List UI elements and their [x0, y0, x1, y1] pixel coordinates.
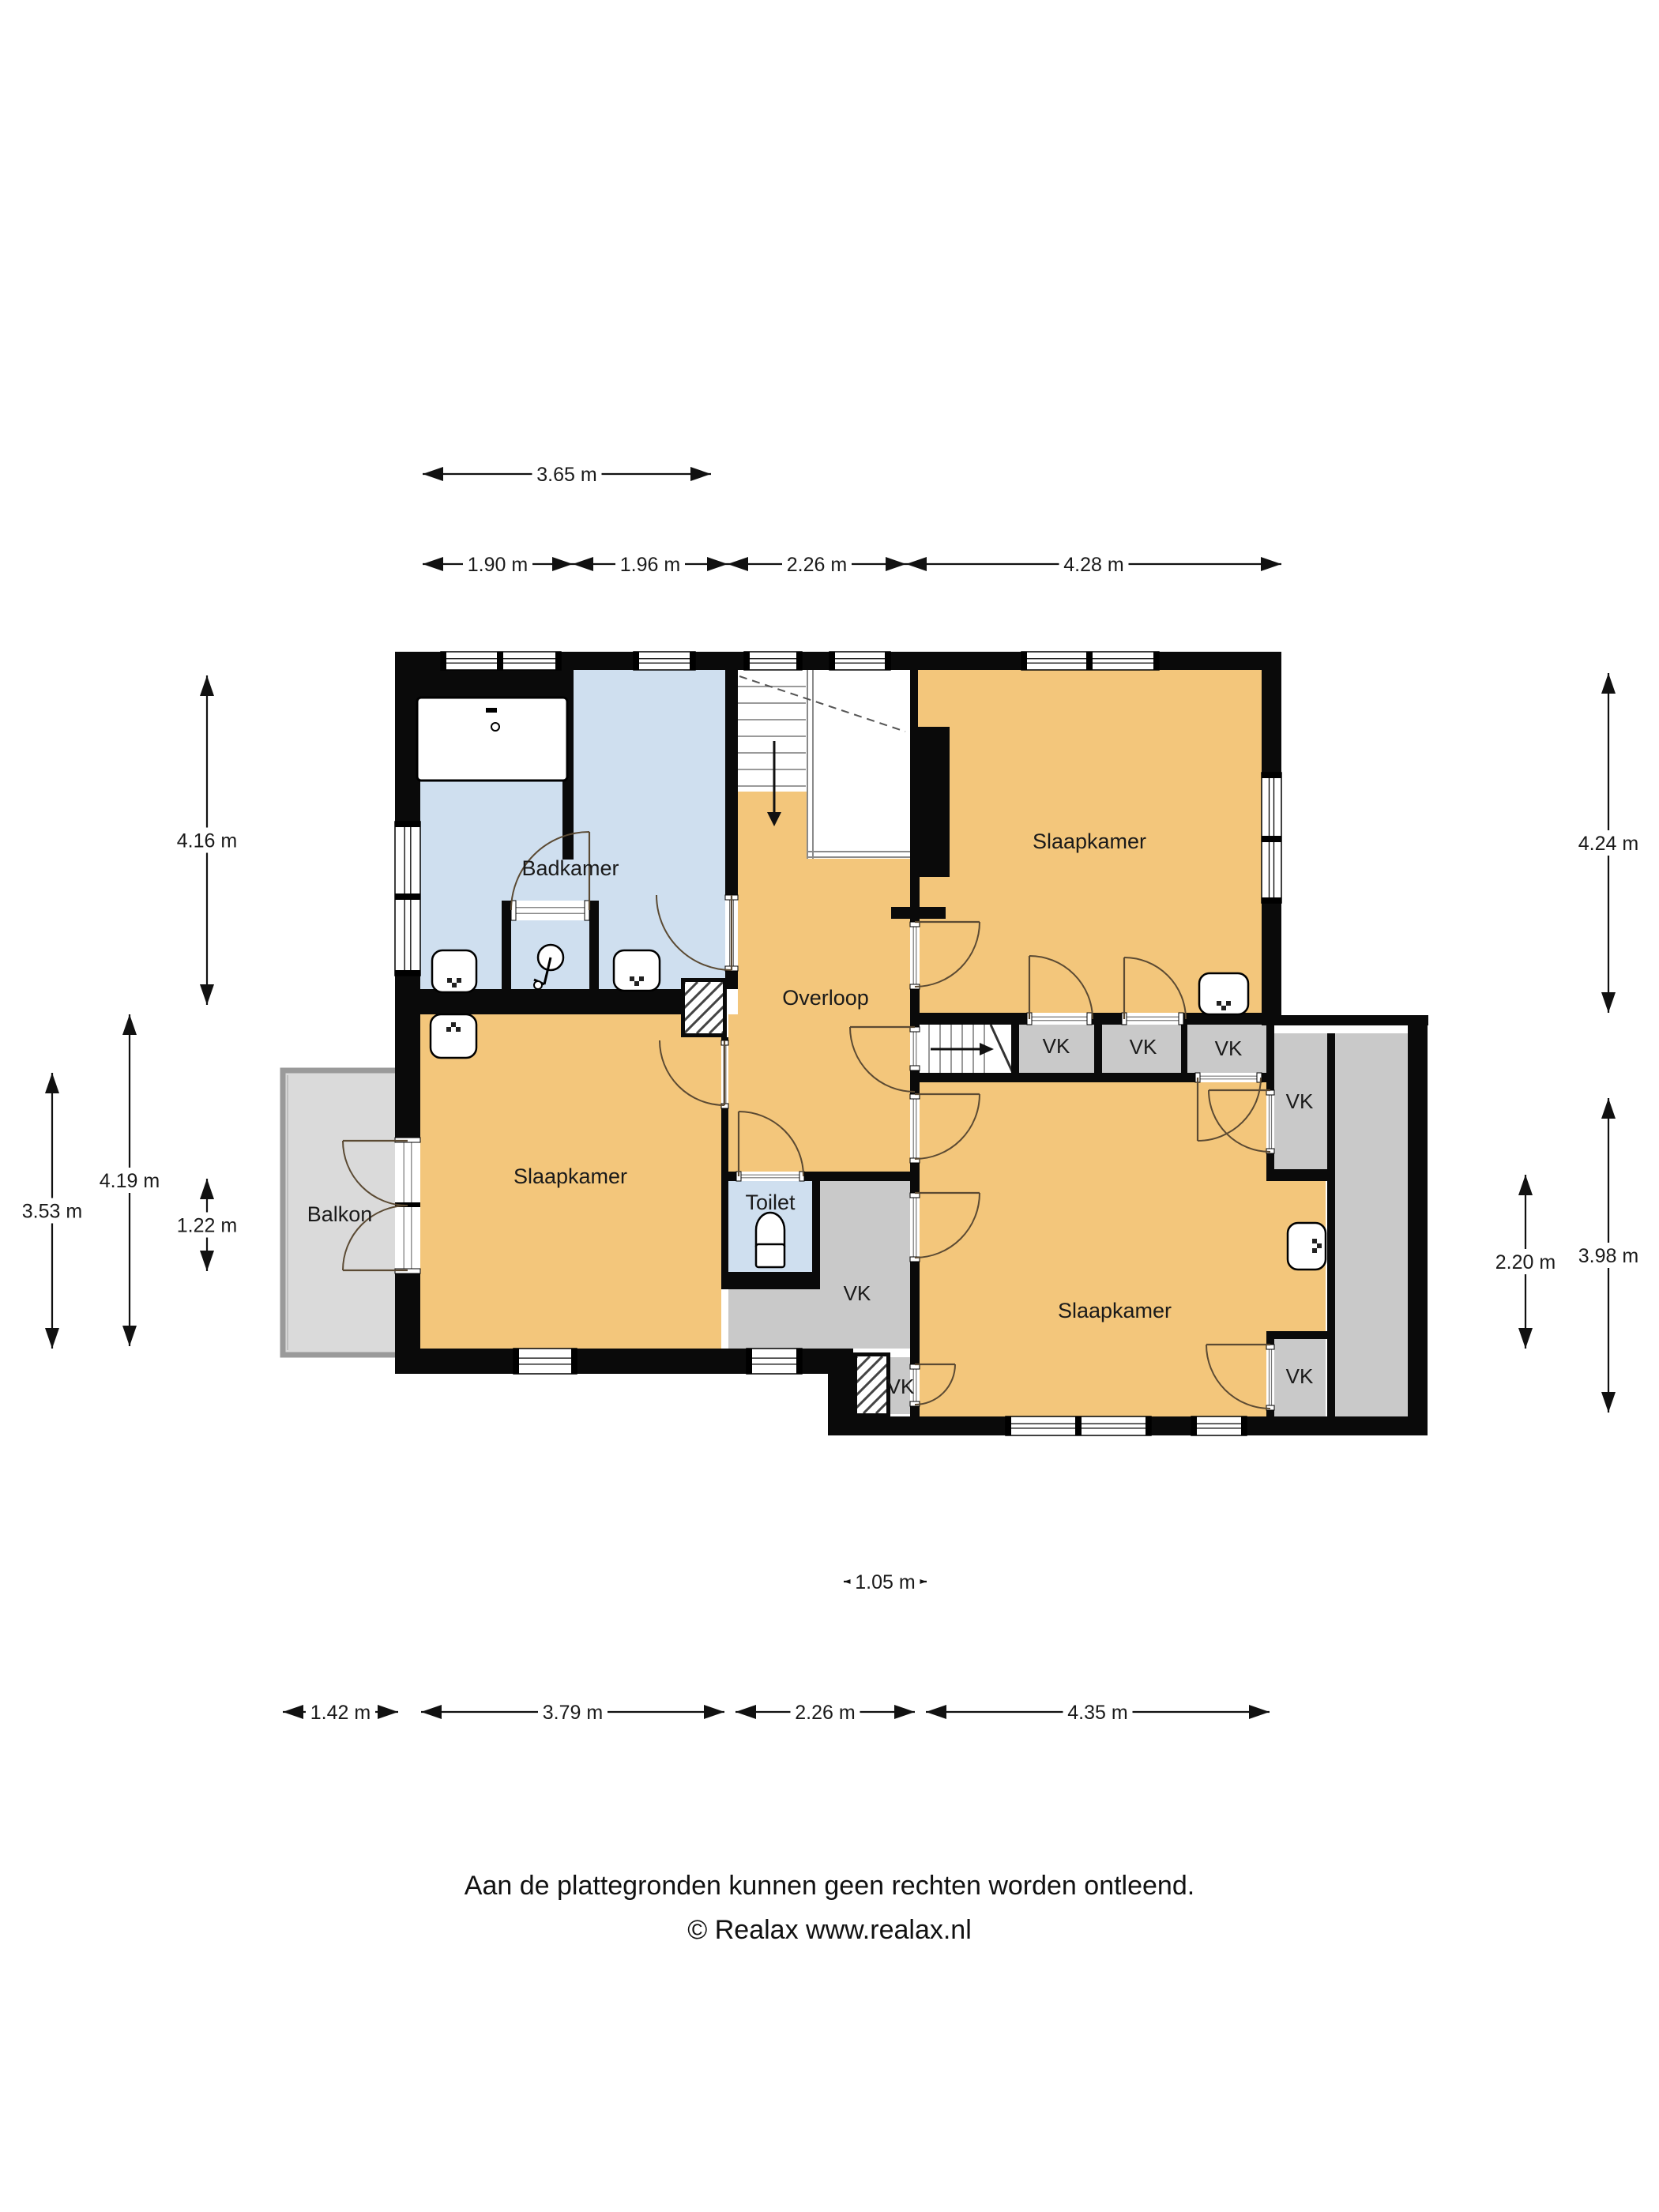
window-jamb [747, 1349, 752, 1374]
wall-segment [920, 1013, 1027, 1025]
wall-segment [1262, 903, 1281, 1025]
window [1191, 1416, 1247, 1435]
room-label-slaapkamer: Slaapkamer [1058, 1299, 1172, 1322]
wall-segment [1408, 1025, 1428, 1435]
window [747, 1349, 802, 1374]
dim-arrow-head [1601, 992, 1616, 1013]
window-jamb [829, 652, 835, 670]
faucet-icon [1312, 1248, 1317, 1253]
window-jamb [1262, 897, 1281, 903]
footer-copyright: © Realax www.realax.nl [0, 1915, 1659, 1946]
toilet-bowl-icon [756, 1213, 784, 1246]
window-mullion [1086, 652, 1093, 670]
closet-label-vk: VK [844, 1281, 871, 1305]
dim-arrow-head [378, 1705, 398, 1719]
dim-arrow-head [1518, 1328, 1533, 1349]
dim-arrow-head [1601, 673, 1616, 694]
dim-label: 1.90 m [468, 554, 528, 576]
dim-label: 4.19 m [100, 1170, 160, 1192]
dim-arrow-head [423, 467, 443, 481]
wall-segment [910, 989, 920, 1027]
dim-arrow-head [926, 1705, 946, 1719]
dim-arrow-head [45, 1328, 59, 1349]
window-jamb [1262, 773, 1281, 778]
faucet-icon [452, 983, 457, 987]
closet-label-vk: VK [1286, 1364, 1314, 1388]
closet-column [1335, 1033, 1408, 1416]
dim-arrow-head [122, 1326, 137, 1346]
window-jamb [744, 652, 750, 670]
wall-segment [1262, 1015, 1428, 1025]
doorway [736, 1172, 804, 1181]
room-label-toilet: Toilet [745, 1191, 796, 1214]
dim-arrow-head [200, 1251, 214, 1271]
dim-label: 3.53 m [22, 1201, 82, 1223]
dim-arrow-head [45, 1073, 59, 1093]
room-slaapkamer-bottomright [920, 1082, 1326, 1416]
dim-label: 2.20 m [1495, 1251, 1556, 1273]
window-jamb [1021, 652, 1027, 670]
wall-segment [1266, 1331, 1274, 1345]
doorway-jamb [910, 1066, 920, 1070]
wall-segment [910, 670, 918, 727]
dim-label: 2.26 m [795, 1702, 855, 1724]
faucet-icon [446, 1027, 451, 1032]
wall-segment [721, 1037, 728, 1040]
dim-arrow-head [690, 467, 711, 481]
sink-slaapkamer-left [431, 1014, 476, 1058]
window-jamb [1191, 1416, 1197, 1435]
dim-arrow-head [421, 1705, 442, 1719]
wall-segment [1262, 1073, 1266, 1082]
closet-label-vk: VK [1286, 1089, 1314, 1113]
dim-arrow-head [906, 557, 927, 571]
wall-segment [725, 670, 738, 895]
faucet-icon [634, 981, 639, 986]
faucet-icon [639, 976, 644, 981]
wall-segment [1092, 1013, 1122, 1025]
window-jamb [796, 1349, 802, 1374]
dim-arrow-head [707, 557, 728, 571]
dim-arrow-head [283, 1705, 303, 1719]
wall-segment [502, 901, 511, 1014]
bathtub-faucet-icon [486, 708, 497, 713]
dim-label: 4.16 m [177, 830, 237, 852]
dim-label: 4.24 m [1578, 833, 1638, 855]
doorway [1266, 1090, 1274, 1153]
window [744, 652, 802, 670]
window [829, 652, 890, 670]
wall-segment [1011, 1025, 1019, 1073]
wall-segment [589, 901, 599, 1014]
dim-label: 1.05 m [855, 1571, 915, 1593]
closet-label-vk: VK [1043, 1034, 1070, 1058]
closet-label-vk: VK [887, 1375, 915, 1398]
wall-segment [812, 1172, 820, 1289]
dim-label: 3.79 m [543, 1702, 603, 1724]
dim-label: 1.96 m [620, 554, 680, 576]
window-jamb [1145, 1416, 1151, 1435]
wall-segment [1266, 1410, 1274, 1416]
faucet-icon [1217, 1001, 1221, 1006]
doorway-jamb [1179, 1013, 1183, 1025]
doorway [910, 1027, 920, 1070]
doorway [1027, 1013, 1092, 1025]
wall-segment [725, 971, 738, 989]
dim-arrow-head [894, 1705, 915, 1719]
room-label-badkamer: Badkamer [521, 856, 619, 880]
dim-arrow-head [1601, 1392, 1616, 1413]
doorway [1266, 1345, 1274, 1410]
bathtub-drain-icon [491, 723, 499, 731]
window-mullion [497, 652, 503, 670]
window-jamb [395, 970, 420, 976]
window [634, 652, 695, 670]
window-jamb [796, 652, 802, 670]
doorway [1122, 1013, 1183, 1025]
dim-arrow-head [552, 557, 573, 571]
wall-segment [1266, 1169, 1327, 1181]
dim-arrow-head [1601, 1098, 1616, 1119]
window [513, 1349, 577, 1374]
faucet-icon [1312, 1239, 1317, 1243]
room-label-overloop: Overloop [782, 986, 869, 1010]
room-label-slaapkamer: Slaapkamer [1033, 829, 1146, 853]
dim-arrow-head [122, 1014, 137, 1035]
faucet-icon [451, 1022, 456, 1027]
stairwell-upper [738, 670, 807, 792]
dim-arrow-head [423, 557, 443, 571]
wall-segment [804, 1172, 812, 1181]
dim-label: 1.42 m [310, 1702, 371, 1724]
window-jamb [634, 652, 639, 670]
shower-drain-icon [534, 981, 542, 989]
wall-segment [721, 1108, 728, 1181]
doorway [511, 901, 589, 920]
wall-segment [910, 1163, 920, 1193]
dim-arrow-head [886, 557, 906, 571]
window-jamb [395, 822, 420, 827]
doorway [910, 922, 920, 989]
window-jamb [513, 1349, 519, 1374]
stair-void [807, 670, 911, 859]
wall-segment [1262, 652, 1281, 773]
window-jamb [690, 652, 695, 670]
doorway-jamb [1087, 1013, 1092, 1025]
faucet-icon [1221, 1006, 1226, 1010]
window-mullion [395, 893, 420, 900]
wall-segment [891, 907, 946, 919]
wall-segment [910, 1262, 920, 1364]
footer-disclaimer: Aan de plattegronden kunnen geen rechten… [0, 1871, 1659, 1902]
wall-segment [1094, 1025, 1102, 1073]
dim-label: 4.28 m [1063, 554, 1123, 576]
wall-segment [910, 1070, 920, 1094]
window-jamb [1006, 1416, 1011, 1435]
wall-segment [910, 727, 950, 877]
doorway [1195, 1073, 1262, 1082]
wall-segment [1266, 1015, 1274, 1090]
window-mullion [1075, 1416, 1082, 1435]
wall-segment [728, 1172, 736, 1181]
floorplan-page: BadkamerOverloopSlaapkamerSlaapkamerSlaa… [0, 0, 1659, 2212]
dim-arrow-head [735, 1705, 756, 1719]
dim-arrow-head [200, 1179, 214, 1199]
dim-label: 4.35 m [1067, 1702, 1127, 1724]
wall-segment [920, 1073, 1195, 1082]
faucet-icon [447, 978, 452, 983]
dim-arrow-head [1518, 1175, 1533, 1195]
dim-label: 2.26 m [787, 554, 847, 576]
faucet-icon [456, 1027, 461, 1032]
wall-segment [910, 1406, 920, 1416]
window-mullion [1262, 836, 1281, 842]
window-jamb [441, 652, 446, 670]
window-jamb [1153, 652, 1159, 670]
room-label-slaapkamer: Slaapkamer [513, 1164, 627, 1188]
doorway [910, 1193, 920, 1262]
closet-label-vk: VK [1130, 1035, 1157, 1059]
window-jamb [555, 652, 561, 670]
wall-segment [820, 1172, 910, 1181]
dim-arrow-head [200, 984, 214, 1005]
dim-arrow-head [573, 557, 593, 571]
dim-arrow-head [704, 1705, 724, 1719]
room-label-balkon: Balkon [307, 1202, 373, 1226]
dim-arrow-head [1249, 1705, 1270, 1719]
faucet-icon [630, 976, 634, 981]
toilet-tank-icon [756, 1244, 784, 1267]
wall-segment [1266, 1331, 1327, 1339]
faucet-icon [457, 978, 461, 983]
wall-segment [1181, 1025, 1187, 1073]
window-jamb [885, 652, 890, 670]
dim-label: 3.98 m [1578, 1245, 1638, 1267]
dim-arrow-head [1261, 557, 1281, 571]
dim-arrow-head [728, 557, 748, 571]
window-jamb [1241, 1416, 1247, 1435]
closet-label-vk: VK [1215, 1036, 1243, 1060]
faucet-icon [1317, 1243, 1322, 1248]
faucet-icon [1226, 1001, 1231, 1006]
doorway [910, 1094, 920, 1163]
dim-arrow-head [200, 675, 214, 696]
wall-segment [1327, 1033, 1335, 1416]
dim-label: 3.65 m [536, 464, 596, 486]
window-jamb [571, 1349, 577, 1374]
dim-label: 1.22 m [177, 1215, 237, 1237]
wall-segment [721, 1272, 812, 1289]
wall-segment [395, 989, 681, 1014]
